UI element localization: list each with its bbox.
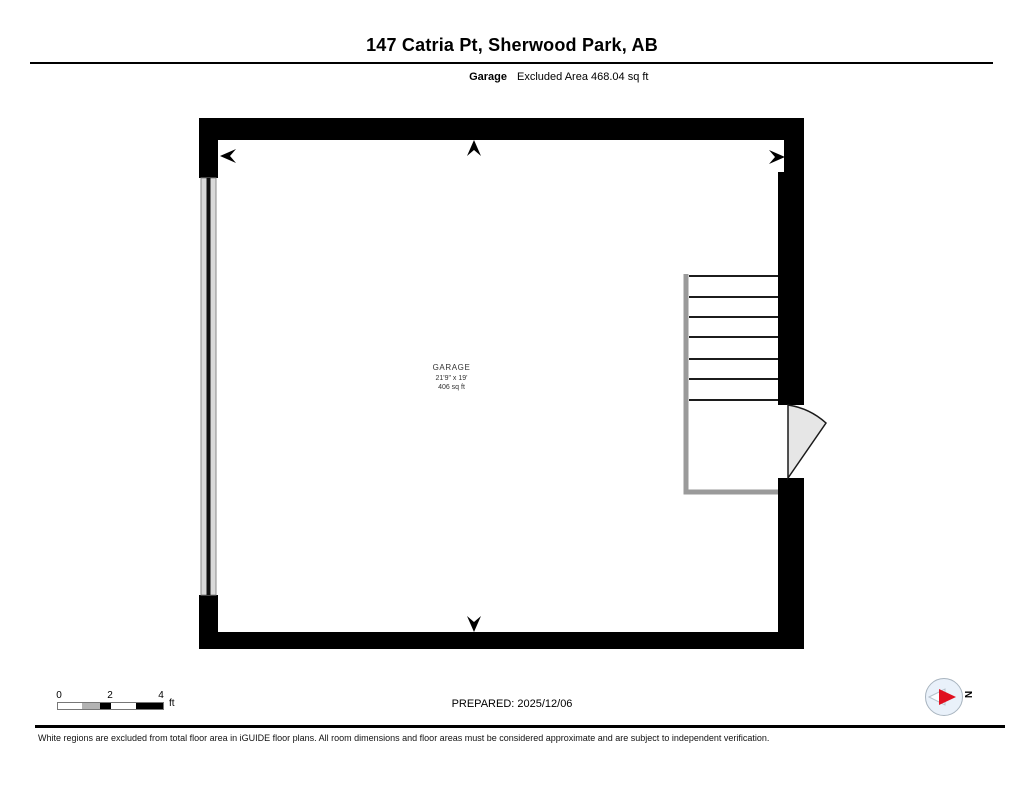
compass-north-label: N (962, 691, 973, 698)
room-dimensions: 21'9" x 19' (349, 374, 554, 383)
legend-excluded-area: Excluded Area 468.04 sq ft (517, 71, 1024, 83)
garage-door (201, 178, 216, 595)
legend-room-name: Garage (0, 71, 507, 83)
footer-divider (35, 725, 1005, 728)
arrow-right-icon (769, 150, 785, 164)
arrow-left-icon (220, 149, 236, 163)
room-label: GARAGE 21'9" x 19' 406 sq ft (349, 363, 554, 393)
prepared-date: PREPARED: 2025/12/06 (0, 698, 1024, 710)
floor-legend: Garage Excluded Area 468.04 sq ft (0, 71, 1024, 83)
room-name: GARAGE (349, 363, 554, 374)
room-area: 406 sq ft (349, 383, 554, 392)
arrow-up-icon (467, 140, 481, 156)
disclaimer-text: White regions are excluded from total fl… (38, 733, 769, 743)
floorplan-drawing: GARAGE 21'9" x 19' 406 sq ft (199, 118, 804, 649)
compass-needle-icon (925, 678, 963, 716)
arrow-down-icon (467, 616, 481, 632)
staircase (686, 274, 778, 492)
header-divider (30, 62, 993, 64)
compass: N (925, 678, 963, 716)
floorplan-page: 147 Catria Pt, Sherwood Park, AB Garage … (0, 0, 1024, 791)
page-title: 147 Catria Pt, Sherwood Park, AB (0, 35, 1024, 56)
door-swing (788, 405, 826, 478)
